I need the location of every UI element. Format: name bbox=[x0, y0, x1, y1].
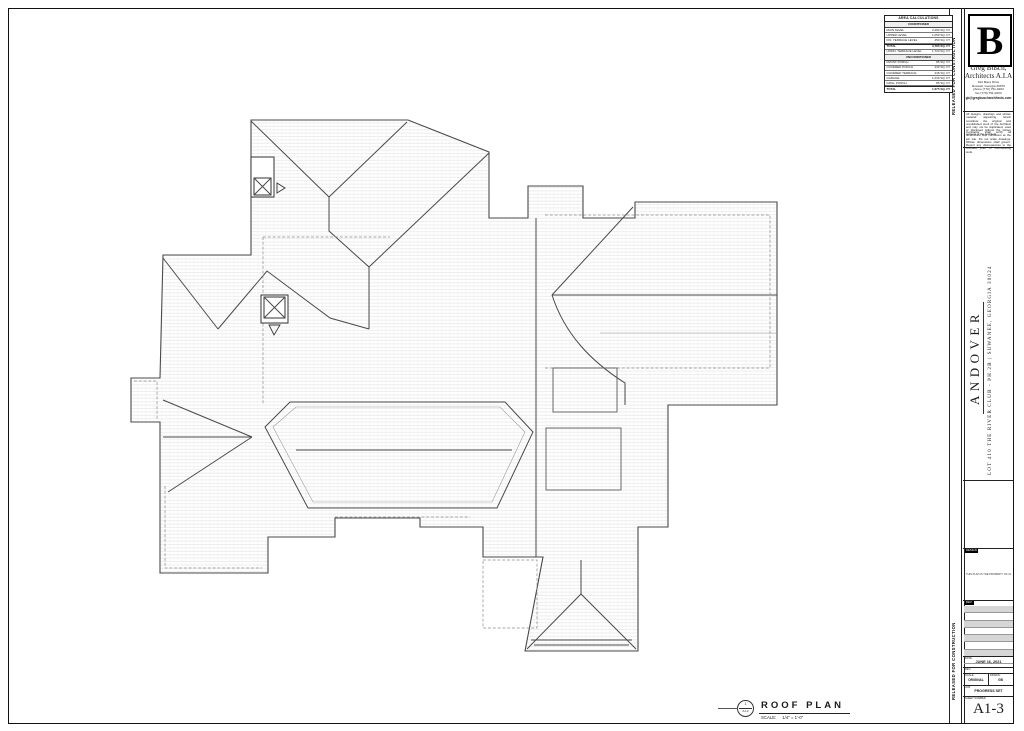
revision-row bbox=[964, 621, 1013, 628]
architectural-sheet: AREA CALCULATIONS CONDITIONEDMAIN LEVEL2… bbox=[0, 0, 1024, 731]
roof-mass bbox=[131, 120, 777, 651]
sheet-number-label: SHEET NUMBER bbox=[965, 697, 986, 700]
firm-name: Greg Busch, Architects A.I.A bbox=[964, 65, 1013, 80]
hidden-wall-line bbox=[483, 560, 537, 628]
project-name-rule bbox=[983, 302, 984, 414]
area-value: 2,280 SQ. FT. bbox=[932, 29, 951, 32]
area-value: 1,030 SQ. FT. bbox=[932, 77, 951, 80]
area-table-row: TOTAL1,675 SQ. FT. bbox=[885, 86, 952, 91]
area-value: 1,720 SQ. FT. bbox=[932, 50, 951, 53]
area-value: 3,780 SQ. FT. bbox=[932, 45, 951, 48]
firm-logo: B bbox=[968, 14, 1012, 67]
area-label: TOTAL bbox=[887, 88, 897, 91]
area-label: COVERED TERRACE bbox=[887, 72, 917, 75]
design-tag: DESIGN bbox=[965, 549, 979, 553]
detail-marker: 1 A1-3 bbox=[737, 700, 754, 717]
area-label: COVERED PORCH bbox=[887, 66, 914, 69]
detail-marker-number: 1 bbox=[739, 701, 752, 709]
released-stamp-top: RELEASED FOR CONSTRUCTION bbox=[951, 37, 956, 115]
area-calculations-table: AREA CALCULATIONS CONDITIONEDMAIN LEVEL2… bbox=[884, 15, 953, 93]
area-label: TOTAL bbox=[887, 45, 897, 48]
firm-email: gb@gregbuscharchitects.com bbox=[964, 96, 1013, 100]
titleblock-divider bbox=[963, 147, 1013, 148]
date-value: JUNE 16, 2021 bbox=[964, 660, 1013, 664]
area-value: 85 SQ. FT. bbox=[936, 61, 950, 64]
rev-label: REV: bbox=[965, 668, 971, 671]
roof-plan-drawing bbox=[0, 0, 1024, 731]
disclaimer-paragraph-2: Contractor shall verify all dimensions a… bbox=[966, 131, 1011, 154]
job-value: PROGRESS SET bbox=[964, 689, 1013, 693]
titleblock-divider bbox=[963, 480, 1013, 481]
area-value: 245 SQ. FT. bbox=[934, 72, 950, 75]
project-name: ANDOVER bbox=[967, 300, 983, 415]
area-value: 1,050 SQ. FT. bbox=[932, 34, 951, 37]
drawing-title-text: ROOF PLAN SCALE: 1/4" = 1'-0" bbox=[759, 700, 850, 720]
area-label: MAIN LEVEL bbox=[887, 29, 905, 32]
area-value: 450 SQ. FT. bbox=[934, 39, 950, 42]
drawn-value: GB bbox=[988, 678, 1013, 682]
revision-row bbox=[964, 635, 1013, 642]
area-table-sections: CONDITIONEDMAIN LEVEL2,280 SQ. FT.UPPER … bbox=[885, 22, 952, 91]
drawing-scale: SCALE: 1/4" = 1'-0" bbox=[759, 714, 850, 721]
drawing-title: ROOF PLAN bbox=[759, 700, 850, 714]
scale-value: ORIGINAL bbox=[964, 678, 988, 682]
area-label: FIN. TERRACE LEVEL bbox=[887, 39, 918, 42]
area-label: GARAGE bbox=[887, 77, 900, 80]
rev-tag: REV: bbox=[965, 601, 974, 605]
sheet-number: A1-3 bbox=[964, 701, 1013, 718]
detail-marker-sheet: A1-3 bbox=[738, 709, 753, 713]
area-value: 230 SQ. FT. bbox=[934, 66, 950, 69]
revision-row bbox=[964, 642, 1013, 649]
area-value: 85 SQ. FT. bbox=[936, 82, 950, 85]
area-value: 1,675 SQ. FT. bbox=[932, 88, 951, 91]
area-label: GRILL PORCH bbox=[887, 82, 907, 85]
released-stamp-bottom: RELEASED FOR CONSTRUCTION bbox=[951, 622, 956, 700]
area-label: FRONT PORCH bbox=[887, 61, 909, 64]
area-label: UNFIN. TERRACE LEVEL bbox=[887, 50, 922, 53]
project-address: LOT 410 THE RIVER CLUB - PH.2B | SUWANEE… bbox=[987, 240, 993, 475]
revision-row bbox=[964, 606, 1013, 613]
firm-name-line2: Architects A.I.A bbox=[964, 73, 1013, 81]
design-note: THIS PLAN IS THE PROPERTY OF GREG BUSCH … bbox=[966, 573, 1011, 576]
revision-row bbox=[964, 613, 1013, 620]
firm-address-line: fax (770) 751-0203 bbox=[964, 92, 1013, 96]
firm-logo-letter: B bbox=[977, 21, 1004, 61]
drawing-title-bar: 1 A1-3 ROOF PLAN SCALE: 1/4" = 1'-0" bbox=[737, 700, 850, 720]
area-label: UPPER LEVEL bbox=[887, 34, 908, 37]
firm-address: 102 Macy DriveRoswell, Georgia 30076phon… bbox=[964, 81, 1013, 95]
revision-row bbox=[964, 628, 1013, 635]
